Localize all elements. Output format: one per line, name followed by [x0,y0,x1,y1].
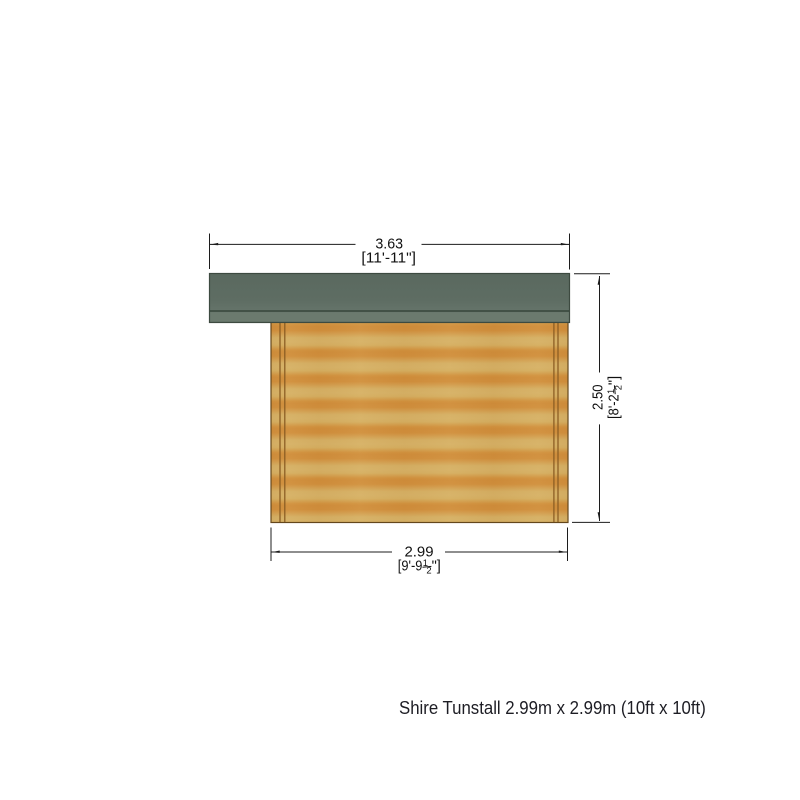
svg-text:[11'-11"]: [11'-11"] [361,250,416,267]
svg-text:[8'-2: [8'-2 [606,394,623,419]
svg-text:"]: "] [432,558,441,575]
svg-text:[9'-9: [9'-9 [398,558,423,575]
svg-text:Shire Tunstall 2.99m x 2.99m (: Shire Tunstall 2.99m x 2.99m (10ft x 10f… [399,698,706,718]
svg-text:"]: "] [606,376,623,385]
svg-text:2.50: 2.50 [589,384,606,410]
